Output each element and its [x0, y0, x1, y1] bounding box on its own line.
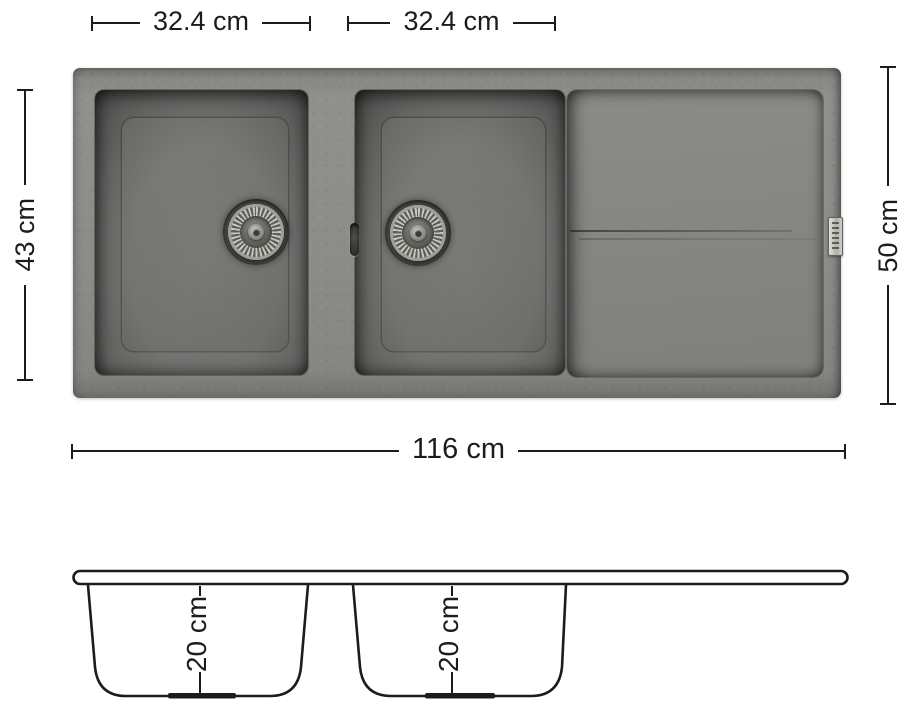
dimension-end-tick [844, 444, 846, 459]
drain-strainer-left-icon [223, 199, 289, 265]
dimension-label-bowl1-depth: 20 cm [181, 596, 212, 672]
dimension-bowl1-width: 32.4 cm [91, 14, 311, 32]
dimension-end-tick [554, 16, 556, 31]
drainboard-groove [570, 230, 792, 232]
dimension-line [73, 450, 399, 452]
dimension-label-bowl1-width: 32.4 cm [140, 8, 262, 35]
drain-strainer-right-icon [385, 200, 451, 266]
drainboard [567, 90, 823, 377]
dimension-line [513, 22, 554, 24]
dimension-label-bowl2-depth: 20 cm [433, 596, 464, 672]
dimension-label-inner-height: 43 cm [12, 185, 39, 285]
dimension-line [349, 22, 390, 24]
drain-screw [253, 229, 260, 236]
sink-section-view: 20 cm 20 cm [0, 555, 910, 711]
dimension-line [24, 285, 26, 379]
dimension-bowl2-depth: 20 cm [433, 586, 464, 695]
dimension-bowl1-depth: 20 cm [181, 586, 212, 695]
dimension-end-tick [309, 16, 311, 31]
dimension-line [887, 285, 889, 403]
dimension-line [93, 22, 140, 24]
dimension-total-width: 116 cm [71, 442, 846, 460]
drain-screw [415, 230, 422, 237]
dimension-line [518, 450, 844, 452]
brand-plate [828, 217, 843, 256]
dimension-line [24, 91, 26, 185]
dimension-end-tick [17, 379, 33, 381]
drainboard-groove [579, 238, 817, 240]
dimension-end-tick [880, 403, 896, 405]
dimension-line [262, 22, 309, 24]
sink-top-view-photo [73, 68, 841, 398]
product-dimension-diagram: 32.4 cm 32.4 cm 43 cm 50 cm 116 cm [0, 0, 910, 711]
dimension-inner-height: 43 cm [16, 89, 34, 381]
section-drain-right [425, 693, 495, 699]
overflow-hole [350, 223, 359, 256]
dimension-label-total-width: 116 cm [399, 435, 518, 464]
dimension-label-outer-depth: 50 cm [875, 186, 902, 286]
dimension-label-bowl2-width: 32.4 cm [390, 8, 512, 35]
dimension-bowl2-width: 32.4 cm [347, 14, 556, 32]
dimension-line [887, 68, 889, 186]
section-drain-left [168, 693, 236, 699]
section-slab-profile [74, 571, 848, 584]
dimension-outer-depth: 50 cm [879, 66, 897, 405]
